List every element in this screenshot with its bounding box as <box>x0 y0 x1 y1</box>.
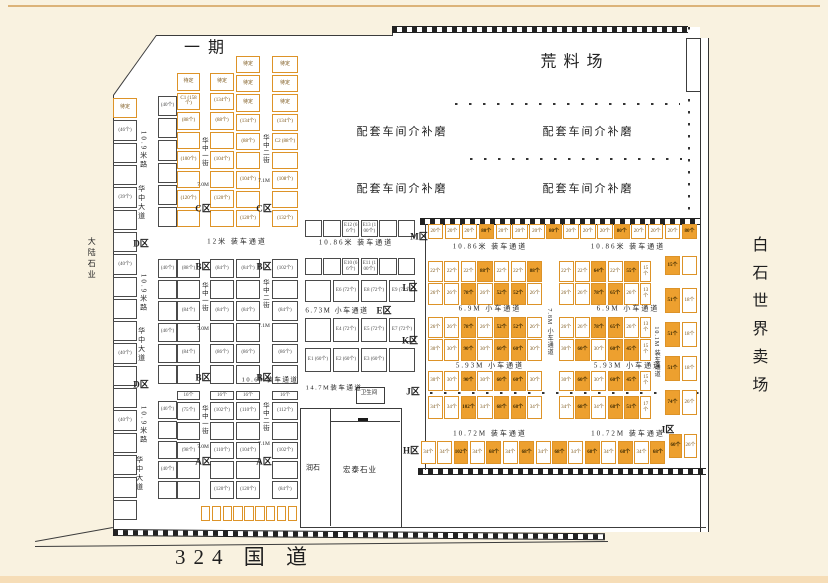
lane-label: 14.7M装车通道 <box>306 386 363 393</box>
road-label: 10.9米路 <box>139 406 146 444</box>
stall-cell <box>305 258 322 275</box>
stall-cell: 68个 <box>486 441 501 464</box>
lane-label: 6.9M 小车通道 <box>459 305 522 312</box>
stall-cell: 60个 <box>575 371 590 391</box>
street-width-label: 7.0M <box>197 183 209 189</box>
stall-cell <box>305 220 322 237</box>
stall-cell: (75个) <box>177 402 200 420</box>
stall-cell: 26个 <box>575 283 590 305</box>
stall-row: 30个60个30个60个45个15个 <box>558 371 652 391</box>
stall-cell: 26个 <box>527 283 542 305</box>
stall-cell: E1 (60个) <box>305 348 332 372</box>
market-label: 白石世界卖场 <box>749 236 766 404</box>
stall-cell: (88个) <box>177 112 200 130</box>
stall-row: E6 (72个)E8 (72个)E9 (72个) <box>304 280 416 302</box>
stall-cell <box>398 258 415 275</box>
stall-cell: 51个 <box>665 322 681 347</box>
stall-cell: (40个) <box>158 96 177 116</box>
stall-cell: 13个 <box>640 317 651 338</box>
stall-cell <box>379 258 396 275</box>
stall-cell <box>158 301 177 320</box>
stall-cell <box>236 323 260 342</box>
stall-cell: 20个 <box>445 224 460 239</box>
plan-boundary <box>35 527 113 542</box>
stall-cell <box>158 344 177 363</box>
stall-cell: C2 (88个) <box>272 133 298 150</box>
stall-cell: 30个 <box>591 371 606 391</box>
stall-cell: 30个 <box>559 371 574 391</box>
stall-column: (84个)(84个)(86个) <box>210 258 234 385</box>
stall-cell <box>113 143 137 163</box>
stall-cell <box>177 132 200 150</box>
stall-cell: (40个) <box>158 461 177 479</box>
stall-cell: 20个 <box>496 224 511 239</box>
street-label: 华中一街 <box>200 405 207 435</box>
stall-cell: 待定 <box>236 56 260 73</box>
stall-cell: 20个 <box>597 224 612 239</box>
stall-cell: 60个 <box>511 339 526 361</box>
stall-cell: 18个 <box>682 288 698 313</box>
stall-cell: 65个 <box>608 317 623 338</box>
stall-row: 30个30个90个30个60个60个30个 <box>427 371 543 391</box>
stall-column: (102个)(84个)(86个) <box>272 258 298 385</box>
zone-tag: B区 <box>195 373 210 382</box>
stall-cell: 68个 <box>494 396 509 419</box>
lane-label: 10.86米 装车通道 <box>453 243 528 250</box>
stall-cell: 待定 <box>236 75 260 92</box>
stall-row: 20个20个20个80个20个20个20个80个20个20个20个80个20个2… <box>427 224 698 239</box>
stall-cell <box>305 318 332 342</box>
lane-label: 7.8M 小车通道 <box>546 308 552 355</box>
stall-cell: (84个) <box>210 301 234 320</box>
stall-cell: (104个) <box>210 151 234 169</box>
stall-cell <box>389 348 416 372</box>
stall-cell: 26个 <box>559 317 574 338</box>
stall-cell: 68个 <box>511 396 526 419</box>
dotted-divider <box>455 103 680 105</box>
stall-cell <box>158 207 177 227</box>
stall-cell: (40个) <box>113 343 137 363</box>
stall-cell: 22个 <box>428 261 443 282</box>
stall-cell <box>272 461 298 479</box>
stall-cell: (120个) <box>210 190 234 208</box>
stall-cell: 22个 <box>559 261 574 282</box>
stall-column: 16个(112个)(102个)(84个) <box>272 390 298 500</box>
lane-label: 10.1M 装车通道 <box>653 326 659 377</box>
company-label: 大陆石业 <box>87 237 95 281</box>
stall-cell: 45个 <box>624 339 639 361</box>
toilet-label: 卫生间 <box>361 391 378 397</box>
stall-cell: (46个) <box>113 120 137 140</box>
stall-cell: 60个 <box>608 371 623 391</box>
plan-boundary <box>156 35 392 36</box>
stall-cell: 52个 <box>494 283 509 305</box>
stall-cell: E8 (72个) <box>361 280 388 302</box>
stall-column: 待定(46个)(39个)(40个)(40个)(40个) <box>113 97 137 521</box>
stall-cell: 88个 <box>477 261 492 282</box>
stall-cell <box>272 280 298 299</box>
stall-cell: 34个 <box>601 441 616 464</box>
stall-cell: 80个 <box>546 224 561 239</box>
stall-cell: 18个 <box>682 356 698 381</box>
stall-cell <box>266 506 275 521</box>
stall-cell: 26个 <box>444 317 459 338</box>
stall-cell: 30个 <box>428 371 443 391</box>
double-wall-line <box>700 38 709 532</box>
stall-row: 26个26个78个65个26个13个 <box>558 317 652 338</box>
stall-cell <box>177 481 200 499</box>
stall-cell: 26个 <box>428 283 443 305</box>
stall-cell: (120个) <box>210 481 234 499</box>
stall-cell <box>177 280 200 299</box>
stall-cell: 68个 <box>650 441 665 464</box>
stall-cell: 34个 <box>444 396 459 419</box>
stall-cell: E4 (72个) <box>333 318 360 342</box>
stall-row: 30个60个30个60个45个15个 <box>558 339 652 361</box>
stall-row: 34个34个102个34个68个34个68个34个68个34个68个34个68个… <box>420 441 666 464</box>
street-width-label: 7.1M <box>258 442 270 448</box>
stall-column: 待定待定待定(134个)(88个)(104个)(120个) <box>236 55 260 228</box>
dotted-divider <box>430 392 702 394</box>
building-divider <box>330 408 331 526</box>
stall-cell: 16个 <box>272 391 298 400</box>
stall-cell: 102个 <box>454 441 469 464</box>
road-label: 10.9米路 <box>139 274 146 312</box>
road-label: 10.9米路 <box>139 131 146 169</box>
stall-cell: 26个 <box>624 317 639 338</box>
road-label: 华中大道 <box>137 185 144 221</box>
stall-row: 22个22个22个88个22个22个88个 <box>427 261 543 282</box>
stall-cell: 64个 <box>591 261 606 282</box>
stall-cell: (120个) <box>236 481 260 499</box>
stall-cell: 74个 <box>665 390 681 415</box>
lane-label: 6.9M 小车通道 <box>597 305 660 312</box>
stall-column: (88个)(84个)(84个) <box>177 258 200 385</box>
zone-tag: D区 <box>133 239 149 248</box>
stall-cell <box>244 506 253 521</box>
bottom-border-strip <box>0 576 828 583</box>
stall-cell: (86个) <box>272 344 298 363</box>
stall-cell <box>236 152 260 169</box>
stall-cell: 34个 <box>428 396 443 419</box>
street-label: 华中二街 <box>261 279 268 309</box>
stall-cell <box>210 171 234 189</box>
stall-cell <box>158 140 177 160</box>
stall-cell: 18个 <box>682 322 698 347</box>
stall-column: 16个(102个)(110个)(120个) <box>210 390 234 500</box>
stall-cell: 16个 <box>210 391 234 400</box>
street-label: 华中二街 <box>261 134 268 164</box>
stall-cell: 15个 <box>665 256 681 275</box>
stall-cell: 30个 <box>527 371 542 391</box>
workshop-label: 配套车间介补磨 <box>357 184 448 196</box>
stall-cell: 待定 <box>177 73 200 91</box>
stall-cell: 13个 <box>640 283 651 305</box>
stall-cell <box>210 422 234 440</box>
stall-row: E1 (60个)E2 (60个)E3 (60个) <box>304 348 416 372</box>
stall-cell: 68个 <box>552 441 567 464</box>
stall-cell: 22个 <box>461 261 476 282</box>
stall-cell: 16个 <box>236 391 260 400</box>
stall-cell: 26个 <box>477 283 492 305</box>
stall-cell <box>210 280 234 299</box>
road-label: 华中大道 <box>137 327 144 363</box>
stall-row: 74个26个 <box>664 390 698 415</box>
stall-cell: 26个 <box>428 317 443 338</box>
zone-tag: B区 <box>195 262 210 271</box>
stall-cell: 78个 <box>461 317 476 338</box>
stall-cell <box>272 323 298 342</box>
stall-row: E4 (72个)E5 (72个)E7 (72个) <box>304 318 416 342</box>
stall-cell: 20个 <box>462 224 477 239</box>
zone-tag: C区 <box>195 204 211 213</box>
stall-cell <box>113 433 137 453</box>
stall-cell: 22个 <box>575 261 590 282</box>
stall-cell: 68个 <box>519 441 534 464</box>
stall-cell: 20个 <box>563 224 578 239</box>
stall-cell <box>272 422 298 440</box>
stall-cell <box>158 365 177 384</box>
stall-cell: (40个) <box>113 254 137 274</box>
stall-cell: 26个 <box>477 317 492 338</box>
stall-cell: (102个) <box>272 259 298 278</box>
phase-label: 一期 <box>184 41 232 58</box>
stall-cell: (84个) <box>236 301 260 320</box>
stall-cell: (110个) <box>210 442 234 460</box>
stall-cell: 34个 <box>477 396 492 419</box>
stall-cell: 26个 <box>624 283 639 305</box>
stall-cell: 78个 <box>461 283 476 305</box>
stall-cell: 52个 <box>511 283 526 305</box>
stall-cell <box>113 500 137 520</box>
stall-cell <box>113 477 137 497</box>
dotted-divider <box>470 158 682 160</box>
lane-label: 10.72M 装车通道 <box>453 430 527 437</box>
gate-mark <box>358 418 368 421</box>
stall-cell: 60个 <box>511 371 526 391</box>
stall-cell: 102个 <box>461 396 476 419</box>
stall-cell: 34个 <box>421 441 436 464</box>
lane-label: 10.72M 装车通道 <box>591 430 665 437</box>
stall-cell: (112个) <box>272 402 298 420</box>
workshop-label: 配套车间介补磨 <box>543 127 634 139</box>
stall-cell: 51个 <box>624 396 639 419</box>
stall-cell <box>288 506 297 521</box>
stall-cell: E10 (66个) <box>342 258 359 275</box>
workshop-label: 配套车间介补磨 <box>543 184 634 196</box>
stall-cell: (46个) <box>158 323 177 342</box>
stall-row: 15个 <box>664 256 698 275</box>
stall-cell: (100个) <box>177 151 200 169</box>
stall-cell: 17个 <box>640 396 651 419</box>
stall-cell: 34个 <box>437 441 452 464</box>
lane-label: 10.6M装车通道 <box>242 378 299 385</box>
stall-cell <box>158 441 177 459</box>
stall-cell: 68个 <box>618 441 633 464</box>
stall-cell <box>236 422 260 440</box>
lane-label: 6.73M 小车通道 <box>305 307 368 314</box>
stall-cell <box>113 210 137 230</box>
workshop-label: 配套车间介补磨 <box>357 127 448 139</box>
stall-row: 26个26个78个65个26个13个 <box>558 283 652 305</box>
stall-cell: E6 (72个) <box>333 280 360 302</box>
zone-tag: E区 <box>376 306 391 315</box>
stall-cell: 80个 <box>682 224 697 239</box>
stall-cell: E3 (60个) <box>361 348 388 372</box>
stall-cell: 15个 <box>640 371 651 391</box>
street-label: 华中二街 <box>261 402 268 432</box>
stall-cell: 45个 <box>624 371 639 391</box>
street-width-label: 7.1M <box>258 324 270 330</box>
stall-row: 30个30个90个30个60个60个30个 <box>427 339 543 361</box>
stall-cell: (84个) <box>272 301 298 320</box>
stall-cell: 34个 <box>536 441 551 464</box>
stall-cell: 55个 <box>624 261 639 282</box>
stall-cell: 34个 <box>527 396 542 419</box>
stall-cell <box>277 506 286 521</box>
stall-column: (40个)(46个) <box>158 258 177 385</box>
stall-cell: 30个 <box>527 339 542 361</box>
zone-tag: L区 <box>402 283 417 292</box>
stall-cell: 20个 <box>665 224 680 239</box>
stall-cell: (134个) <box>272 114 298 131</box>
stall-cell: 78个 <box>591 283 606 305</box>
stall-cell <box>323 258 340 275</box>
stall-cell <box>158 421 177 439</box>
stall-cell <box>305 280 332 302</box>
stall-cell: 34个 <box>503 441 518 464</box>
stall-cell: 34个 <box>634 441 649 464</box>
street-width-label: 7.0M <box>197 327 209 333</box>
lane-label: 10.86米 装车通道 <box>319 239 394 246</box>
stall-cell: 26个 <box>559 283 574 305</box>
stall-cell <box>113 321 137 341</box>
stall-row: 22个22个64个22个55个15个 <box>558 261 652 282</box>
stall-row: E10 (66个)E11 (100个) <box>304 258 416 275</box>
stall-cell: 22个 <box>511 261 526 282</box>
yard-label: 荒料场 <box>540 55 609 72</box>
stall-cell: 30个 <box>477 371 492 391</box>
stall-cell: 22个 <box>444 261 459 282</box>
site-plan: 一期荒料场配套车间介补磨配套车间介补磨配套车间介补磨配套车间介补磨白石世界卖场3… <box>0 0 828 583</box>
stall-cell: 30个 <box>559 339 574 361</box>
stall-cell: 68个 <box>585 441 600 464</box>
stall-cell <box>113 388 137 408</box>
stall-cell: (39个) <box>113 187 137 207</box>
stall-cell <box>158 481 177 499</box>
stall-cell: 20个 <box>580 224 595 239</box>
stall-column: (46个)(40个) <box>158 400 177 500</box>
stall-cell: 60个 <box>669 434 683 458</box>
stall-row: 51个18个 <box>664 322 698 347</box>
stall-cell <box>113 277 137 297</box>
stall-cell: 20个 <box>512 224 527 239</box>
zone-tag: D区 <box>133 380 149 389</box>
stall-cell: 60个 <box>575 339 590 361</box>
street-width-label: 7.0M <box>197 445 209 451</box>
stall-cell: 88个 <box>527 261 542 282</box>
stall-cell: 80个 <box>479 224 494 239</box>
hatch-boundary <box>392 26 688 33</box>
stall-cell <box>210 365 234 384</box>
stall-cell: (88个) <box>210 112 234 130</box>
stall-cell: 16个 <box>177 391 200 400</box>
stall-cell: (110个) <box>236 402 260 420</box>
stall-cell: 26个 <box>444 283 459 305</box>
stall-cell: 68个 <box>608 396 623 419</box>
stall-cell: 34个 <box>559 396 574 419</box>
stall-cell: 51个 <box>665 288 681 313</box>
stall-cell: (84个) <box>177 301 200 320</box>
stall-cell <box>113 455 137 475</box>
stall-cell: 26个 <box>527 317 542 338</box>
stall-cell: (46个) <box>158 401 177 419</box>
stall-cell: 68个 <box>575 396 590 419</box>
stall-cell: (84个) <box>177 344 200 363</box>
stall-cell: 34个 <box>568 441 583 464</box>
stall-row: 60个26个 <box>668 434 698 458</box>
stall-cell: 待定 <box>113 98 137 118</box>
stall-cell: 60个 <box>494 339 509 361</box>
stall-cell: 30个 <box>444 371 459 391</box>
section-wall <box>425 224 426 470</box>
page-background: 一期荒料场配套车间介补磨配套车间介补磨配套车间介补磨配套车间介补磨白石世界卖场3… <box>0 0 828 583</box>
stall-cell: 20个 <box>428 224 443 239</box>
stall-cell <box>158 118 177 138</box>
stall-cell: 待定 <box>272 75 298 92</box>
stall-cell <box>272 152 298 169</box>
stall-cell <box>113 299 137 319</box>
company-label: 宏泰石业 <box>343 466 377 474</box>
stall-cell <box>323 220 340 237</box>
zone-tag: B区 <box>256 262 271 271</box>
stall-cell: 26个 <box>684 434 698 458</box>
stall-cell <box>236 280 260 299</box>
stall-cell: 26个 <box>682 390 698 415</box>
street-width-label: 7.1M <box>258 179 270 185</box>
stall-cell <box>210 210 234 228</box>
stall-cell: E11 (100个) <box>361 258 378 275</box>
stall-column: 待定(134个)(88个)(104个)(120个) <box>210 72 234 228</box>
stall-cell <box>177 422 200 440</box>
stall-row: 51个18个 <box>664 356 698 381</box>
zone-tag: C区 <box>256 204 272 213</box>
stall-row <box>200 506 298 521</box>
stall-cell: (86个) <box>236 344 260 363</box>
stall-cell: 51个 <box>665 356 681 381</box>
stall-cell <box>158 280 177 299</box>
lane-label: 5.93M 小车通道 <box>456 362 524 369</box>
stall-cell: (84个) <box>210 259 234 278</box>
stall-cell: 26个 <box>575 317 590 338</box>
stall-cell: E12 (66个) <box>342 220 359 237</box>
stall-cell: 22个 <box>608 261 623 282</box>
stall-cell: 30个 <box>591 339 606 361</box>
stall-cell: 待定 <box>272 56 298 73</box>
stall-cell: 90个 <box>461 339 476 361</box>
stall-cell <box>158 185 177 205</box>
stall-cell: 20个 <box>648 224 663 239</box>
stall-cell <box>158 163 177 183</box>
stall-cell <box>113 165 137 185</box>
stall-cell: (102个) <box>272 442 298 460</box>
stall-cell <box>272 191 298 208</box>
stall-cell: (134个) <box>236 114 260 131</box>
hatch-boundary <box>418 468 706 475</box>
stall-cell: (84个) <box>272 481 298 499</box>
stall-cell <box>212 506 221 521</box>
stall-cell: 65个 <box>608 283 623 305</box>
